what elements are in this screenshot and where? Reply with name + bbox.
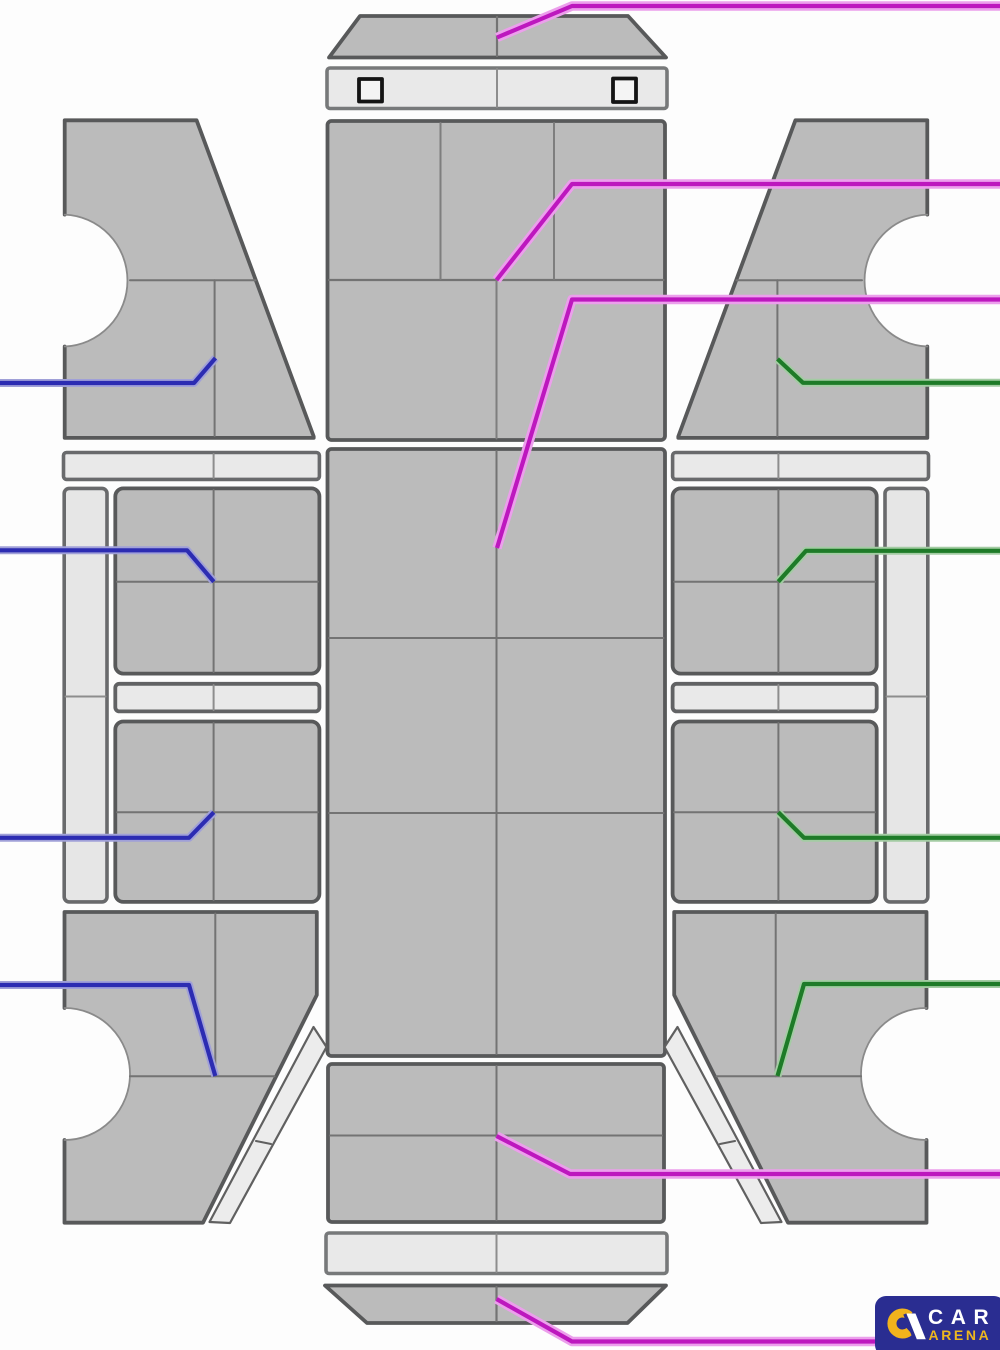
svg-text:CAR: CAR: [928, 1306, 996, 1329]
svg-text:ARENA: ARENA: [929, 1327, 992, 1343]
